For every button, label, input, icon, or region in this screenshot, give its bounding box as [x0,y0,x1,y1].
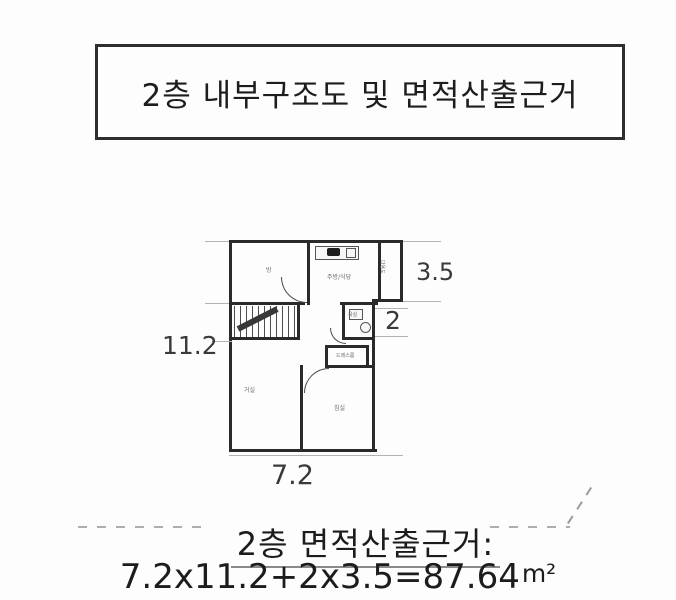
wall-segment [330,365,375,368]
wall-segment [232,302,305,305]
extension-line [403,241,441,242]
dimension-right: 3.5 [416,258,454,286]
basin-fixture [360,322,371,333]
bedroom-door-arc [304,368,329,393]
room-door-arc [281,277,307,303]
wall-segment [340,302,378,305]
room-label-bath: 욕실 [348,311,357,318]
wall-segment [300,365,303,452]
area-formula: 7.2x11.2+2x3.5=87.64 [120,557,520,597]
wall-segment [229,240,403,243]
title-box: 2층 내부구조도 및 면적산출근거 [95,44,625,140]
room-label-bedroom2: 방 [266,265,272,274]
room-label-kitchen: 주방/식당 [327,272,351,281]
dashed-line-curl [567,484,594,525]
page-title: 2층 내부구조도 및 면적산출근거 [141,70,578,115]
kitchen-sink-icon [327,248,340,256]
wall-segment [229,240,232,452]
extension-line [205,241,229,242]
wall-segment [400,240,403,302]
room-label-utility: 다용도 [379,260,386,274]
area-unit: m² [522,559,556,588]
extension-line [375,336,408,337]
wall-segment [325,345,369,348]
room-label-bedroom: 침실 [334,403,345,412]
dimension-bath: 2 [385,306,401,335]
wall-segment [372,299,375,452]
room-label-closet: 드레스룸 [336,352,354,359]
wall-segment [307,243,310,305]
extension-line [229,455,403,456]
wall-segment [342,337,375,340]
dimension-bottom: 7.2 [271,460,314,491]
wall-segment [232,337,300,340]
extension-line [403,301,441,302]
bath-door-arc [330,328,346,344]
extension-line [205,303,229,304]
footer-formula: 7.2x11.2+2x3.5=87.64m² [0,557,676,597]
kitchen-stove-icon [346,248,356,258]
room-label-living: 거실 [244,385,255,394]
wall-segment [229,449,377,452]
dimension-left: 11.2 [162,331,218,360]
